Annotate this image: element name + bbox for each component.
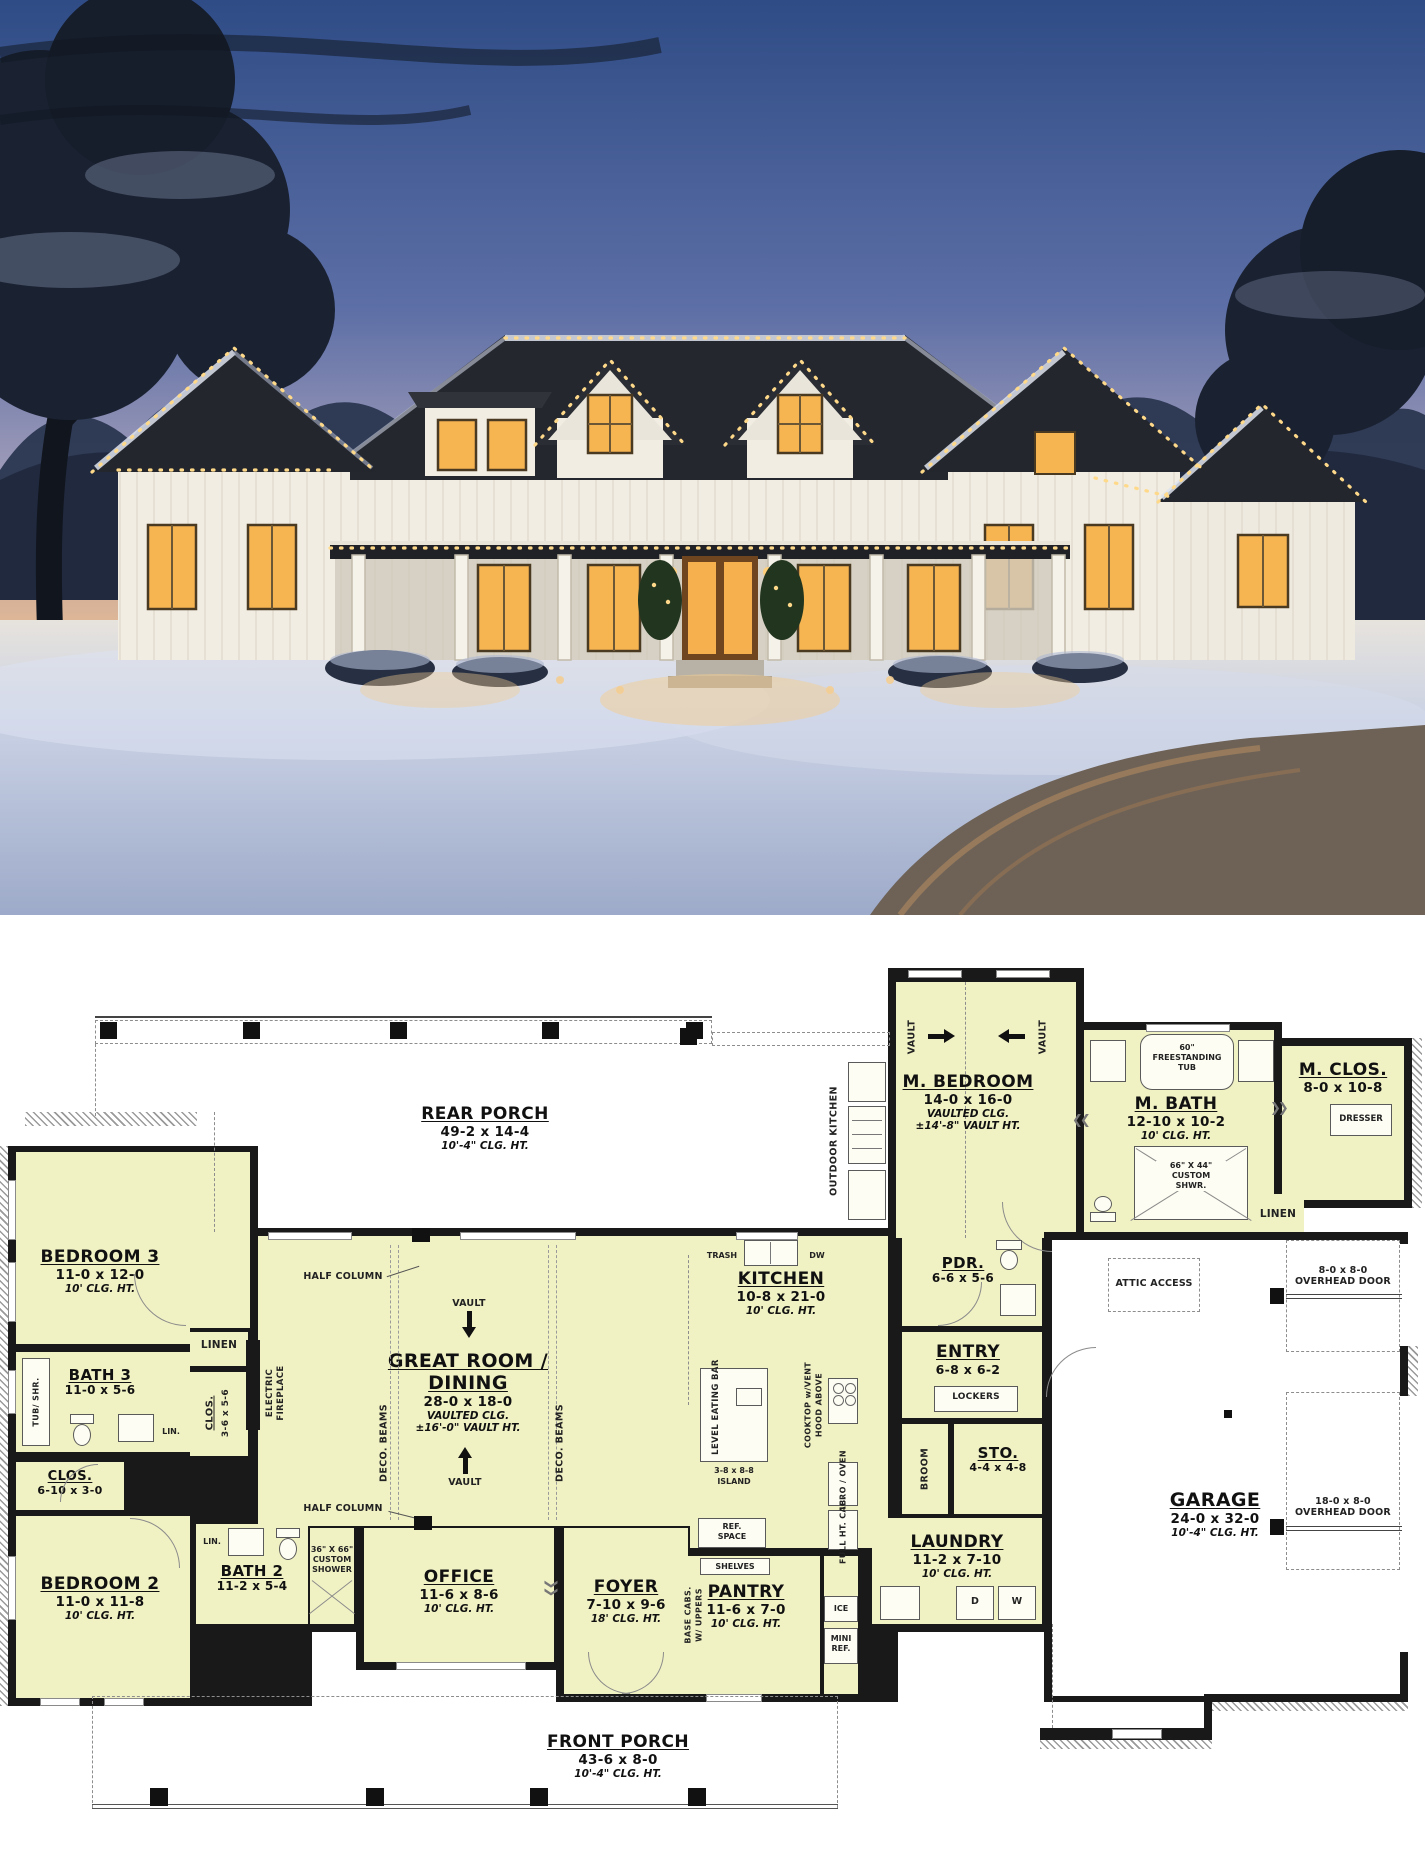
room-clos-bed3 <box>190 1372 248 1456</box>
foyer-clg: 18' CLG. HT. <box>556 1613 696 1625</box>
room-label-mclos: M. CLOS. 8-0 x 10-8 <box>1283 1061 1403 1096</box>
porch-column <box>680 1028 697 1045</box>
island-dims: 3-8 x 8-8 <box>698 1466 770 1476</box>
room-label-garage: GARAGE 24-0 x 32-0 10'-4" CLG. HT. <box>1115 1490 1315 1539</box>
bath3-toilet-tank <box>70 1414 94 1424</box>
house-photo-svg <box>0 0 1425 915</box>
outdoor-kitchen-cabinet <box>848 1170 886 1220</box>
room-label-sto: STO. 4-4 x 4-8 <box>958 1445 1038 1475</box>
shower2-label-3: SHOWER <box>306 1565 358 1575</box>
office-dims: 11-6 x 8-6 <box>369 1588 549 1604</box>
room-label-bath3: BATH 3 11-0 x 5-6 <box>30 1367 170 1398</box>
entry-name: ENTRY <box>908 1343 1028 1363</box>
room-label-laundry: LAUNDRY 11-2 x 7-10 10' CLG. HT. <box>872 1533 1042 1580</box>
house-photo <box>0 0 1425 915</box>
mlinen-label: LINEN <box>1252 1208 1304 1221</box>
garage-front-opening <box>1052 1686 1204 1696</box>
bath2-dims: 11-2 x 5-4 <box>196 1580 308 1594</box>
window-mbath <box>1146 1024 1230 1032</box>
rear-porch-name: REAR PORCH <box>385 1105 585 1125</box>
overhead-door-8-label: 8-0 x 8-0 OVERHEAD DOOR <box>1288 1265 1398 1288</box>
bath3-lin-label: LIN. <box>156 1427 186 1437</box>
tub-label-3: TUB <box>1150 1063 1224 1073</box>
kitchen-sink-divider <box>770 1242 771 1264</box>
laundry-dims: 11-2 x 7-10 <box>872 1553 1042 1569</box>
dryer-label: D <box>958 1596 992 1607</box>
deco-beams-label-2: DECO. BEAMS <box>555 1404 566 1482</box>
bath3-dims: 11-0 x 5-6 <box>30 1384 170 1398</box>
mclos-dims: 8-0 x 10-8 <box>1283 1081 1403 1097</box>
mbath-name: M. BATH <box>1096 1095 1256 1115</box>
kitchen-name: KITCHEN <box>692 1270 870 1290</box>
shelves-label: SHELVES <box>702 1562 768 1572</box>
room-label-rear-porch: REAR PORCH 49-2 x 14-4 10'-4" CLG. HT. <box>385 1105 585 1152</box>
vault-label-bottom: VAULT <box>440 1477 490 1488</box>
level-eating-bar-label: LEVEL EATING BAR <box>711 1359 721 1455</box>
kitchen-clg: 10' CLG. HT. <box>692 1305 870 1317</box>
laundry-sink <box>880 1586 920 1620</box>
hatch-between-doors <box>1408 1346 1418 1396</box>
rear-porch-clg: 10'-4" CLG. HT. <box>385 1140 585 1152</box>
washer-label: W <box>1000 1596 1034 1607</box>
room-label-bath2: BATH 2 11-2 x 5-4 <box>196 1563 308 1594</box>
bedroom3-name: BEDROOM 3 <box>10 1248 190 1268</box>
front-porch-column <box>688 1788 706 1806</box>
window-front-step <box>1112 1729 1162 1739</box>
mbedroom-name: M. BEDROOM <box>878 1073 1058 1093</box>
bath2-toilet <box>279 1538 297 1560</box>
outdoor-kitchen-label: OUTDOOR KITCHEN <box>829 1086 840 1196</box>
entry-dims: 6-8 x 6-2 <box>908 1363 1028 1377</box>
sto-dims: 4-4 x 4-8 <box>958 1462 1038 1475</box>
garage-column-dot <box>1224 1410 1232 1418</box>
door-post-8 <box>1270 1288 1284 1304</box>
floor-plan: 8-0 x 8-0 OVERHEAD DOOR 18-0 x 8-0 OVERH… <box>0 915 1425 1869</box>
trash-label: TRASH <box>700 1251 744 1261</box>
shed-dormer <box>408 392 552 476</box>
mbed-vault-label-right: VAULT <box>1038 1020 1049 1054</box>
cooktop-label-1: COOKTOP w/VENT <box>804 1362 813 1448</box>
overhead-door-8-text: OVERHEAD DOOR <box>1288 1276 1398 1287</box>
dresser-label: DRESSER <box>1332 1114 1390 1125</box>
grill-line <box>852 1148 882 1149</box>
room-shower2 <box>310 1528 354 1624</box>
overhead-door-8-dims: 8-0 x 8-0 <box>1288 1265 1398 1276</box>
room-label-mbedroom: M. BEDROOM 14-0 x 16-0 VAULTED CLG. ±14'… <box>878 1073 1058 1132</box>
garage-door-opening-18 <box>1399 1396 1409 1652</box>
mbath-sink-left <box>1090 1040 1126 1082</box>
room-label-foyer: FOYER 7-10 x 9-6 18' CLG. HT. <box>556 1578 696 1625</box>
kitchen-dims: 10-8 x 21-0 <box>692 1290 870 1306</box>
bath3-sink <box>118 1414 154 1442</box>
burner <box>845 1395 856 1406</box>
ref-space-label-1: REF. <box>700 1522 764 1532</box>
tub-shr-label: TUB/ SHR. <box>32 1377 41 1426</box>
bedroom2-clg: 10' CLG. HT. <box>10 1610 190 1622</box>
room-label-front-porch: FRONT PORCH 43-6 x 8-0 10'-4" CLG. HT. <box>518 1733 718 1780</box>
overhead-door-track-18 <box>1286 1392 1400 1570</box>
bedroom2-dims: 11-0 x 11-8 <box>10 1595 190 1611</box>
broom-label: BROOM <box>920 1448 931 1490</box>
pdr-toilet-tank <box>996 1240 1022 1250</box>
bath3-name: BATH 3 <box>30 1367 170 1384</box>
laundry-clg: 10' CLG. HT. <box>872 1568 1042 1580</box>
mbedroom-vault: ±14'-8" VAULT HT. <box>878 1120 1058 1132</box>
mbath-sink-right <box>1238 1040 1274 1082</box>
half-column-1 <box>412 1228 430 1242</box>
office-door-chevrons: ❯❯ <box>543 1579 558 1595</box>
burner <box>845 1383 856 1394</box>
eating-bar-edge <box>688 1255 689 1405</box>
front-porch-outline <box>92 1696 838 1808</box>
pinned-image-page: { "colors": { "plan_room_fill": "#f1f2c4… <box>0 0 1425 1869</box>
ice-label: ICE <box>826 1604 856 1614</box>
mclos-entry-chevrons: ❯❯ <box>1270 1101 1286 1116</box>
clos-bed3-name: CLOS. <box>205 1396 216 1431</box>
vault-label-top: VAULT <box>444 1298 494 1309</box>
rear-porch-dims: 49-2 x 14-4 <box>385 1125 585 1141</box>
window-mbed-1 <box>908 970 962 978</box>
tub-label-1: 60" <box>1150 1043 1224 1053</box>
shower2-label-1: 36" X 66" <box>306 1545 358 1555</box>
exterior-hatch-left <box>0 1146 8 1706</box>
pdr-sink <box>1000 1284 1036 1316</box>
room-label-office: OFFICE 11-6 x 8-6 10' CLG. HT. <box>369 1568 549 1615</box>
rear-porch-step-hatch <box>25 1112 197 1126</box>
overhead-door-8-line <box>1286 1294 1402 1299</box>
tub-label-2: FREESTANDING <box>1150 1053 1224 1063</box>
dw-label: DW <box>802 1251 832 1261</box>
mini-ref-label-1: MINI <box>826 1634 856 1644</box>
grill-line <box>852 1134 882 1135</box>
room-cab-strip <box>824 1556 858 1694</box>
mbath-entry-chevrons: ❮❮ <box>1072 1113 1088 1128</box>
garage-clg: 10'-4" CLG. HT. <box>1115 1527 1315 1539</box>
exterior-hatch-mclos <box>1412 1038 1422 1208</box>
laundry-name: LAUNDRY <box>872 1533 1042 1553</box>
bath2-sink <box>228 1528 264 1556</box>
clos-bed3-dims: 3-6 x 5-6 <box>221 1389 231 1437</box>
bedroom2-name: BEDROOM 2 <box>10 1575 190 1595</box>
mbath-clg: 10' CLG. HT. <box>1096 1130 1256 1142</box>
room-label-kitchen: KITCHEN 10-8 x 21-0 10' CLG. HT. <box>692 1270 870 1317</box>
island-label: ISLAND <box>698 1477 770 1487</box>
porch-column <box>100 1022 117 1039</box>
mshower-label-3: SHWR. <box>1156 1181 1226 1191</box>
bath2-lin-label: LIN. <box>198 1537 226 1547</box>
office-clg: 10' CLG. HT. <box>369 1603 549 1615</box>
half-column-2 <box>414 1516 432 1530</box>
cooktop-label-2: HOOD ABOVE <box>815 1373 824 1437</box>
burner <box>833 1383 844 1394</box>
sto-name: STO. <box>958 1445 1038 1462</box>
front-porch-name: FRONT PORCH <box>518 1733 718 1753</box>
room-hall-bed3 <box>190 1152 250 1328</box>
mbedroom-dims: 14-0 x 16-0 <box>878 1093 1058 1109</box>
pdr-toilet <box>1000 1250 1018 1270</box>
shower2-label-2: CUSTOM <box>306 1555 358 1565</box>
front-porch-edge-line <box>92 1804 838 1809</box>
hatch-garage-front <box>1212 1702 1408 1711</box>
bath2-toilet-tank <box>276 1528 300 1538</box>
mclos-name: M. CLOS. <box>1283 1061 1403 1081</box>
window-kitchen <box>736 1232 798 1240</box>
mshower-label-2: CUSTOM <box>1156 1171 1226 1181</box>
fireplace-wall <box>246 1340 260 1430</box>
garage-name: GARAGE <box>1115 1490 1315 1512</box>
mbedroom-clg: VAULTED CLG. <box>878 1108 1058 1120</box>
front-porch-clg: 10'-4" CLG. HT. <box>518 1768 718 1780</box>
front-porch-column <box>366 1788 384 1806</box>
garage-dims: 24-0 x 32-0 <box>1115 1512 1315 1528</box>
window-office <box>396 1662 526 1670</box>
kitchen-sink <box>744 1240 798 1266</box>
burner <box>833 1395 844 1406</box>
mbath-dims: 12-10 x 10-2 <box>1096 1115 1256 1131</box>
half-column-label-1: HALF COLUMN <box>298 1271 388 1282</box>
porch-edge-extension <box>712 1032 890 1046</box>
front-porch-column <box>530 1788 548 1806</box>
porch-column <box>390 1022 407 1039</box>
mshower-label-1: 66" X 44" <box>1156 1161 1226 1171</box>
electric-fireplace-label-2: FIREPLACE <box>276 1365 286 1420</box>
office-name: OFFICE <box>369 1568 549 1588</box>
hatch-step-front <box>1040 1740 1212 1749</box>
rear-porch-roofline <box>95 1016 712 1018</box>
bath3-toilet <box>73 1424 91 1446</box>
foyer-name: FOYER <box>556 1578 696 1598</box>
island-sink <box>736 1388 762 1406</box>
window-bath3 <box>8 1370 16 1414</box>
room-label-mbath: M. BATH 12-10 x 10-2 10' CLG. HT. <box>1096 1095 1256 1142</box>
foyer-dims: 7-10 x 9-6 <box>556 1598 696 1614</box>
porch-column <box>542 1022 559 1039</box>
bath2-name: BATH 2 <box>196 1563 308 1580</box>
ref-space-label-2: SPACE <box>700 1532 764 1542</box>
window-mbed-2 <box>996 970 1050 978</box>
front-porch-column <box>150 1788 168 1806</box>
half-column-label-2: HALF COLUMN <box>298 1503 388 1514</box>
window-bed2-front-1 <box>40 1698 80 1706</box>
wall-connector <box>1204 1694 1212 1740</box>
attic-access-label: ATTIC ACCESS <box>1110 1278 1198 1289</box>
window-bed3-1 <box>8 1180 16 1240</box>
room-label-bedroom2: BEDROOM 2 11-0 x 11-8 10' CLG. HT. <box>10 1575 190 1622</box>
electric-fireplace-label-1: ELECTRIC <box>265 1369 275 1417</box>
rear-porch-inner-edge <box>214 1112 215 1232</box>
room-label-entry: ENTRY 6-8 x 6-2 <box>908 1343 1028 1377</box>
mwc-toilet-tank <box>1090 1212 1116 1222</box>
window-great-1 <box>268 1232 352 1240</box>
window-great-2 <box>460 1232 576 1240</box>
stoop-edge-dashed <box>1052 1624 1053 1728</box>
lockers-label: LOCKERS <box>936 1392 1016 1403</box>
mini-ref-label-2: REF. <box>826 1644 856 1654</box>
full-ht-cab-label: FULL HT. CAB. <box>839 1496 848 1564</box>
mwc-toilet <box>1094 1196 1112 1212</box>
mbed-vault-label-left: VAULT <box>907 1020 918 1054</box>
deco-beam-line-1 <box>390 1245 399 1520</box>
deco-beams-label-1: DECO. BEAMS <box>379 1404 390 1482</box>
front-porch-dims: 43-6 x 8-0 <box>518 1753 718 1769</box>
porch-column <box>243 1022 260 1039</box>
rear-porch-left-edge <box>95 1044 96 1116</box>
linen3-label: LINEN <box>190 1339 248 1352</box>
